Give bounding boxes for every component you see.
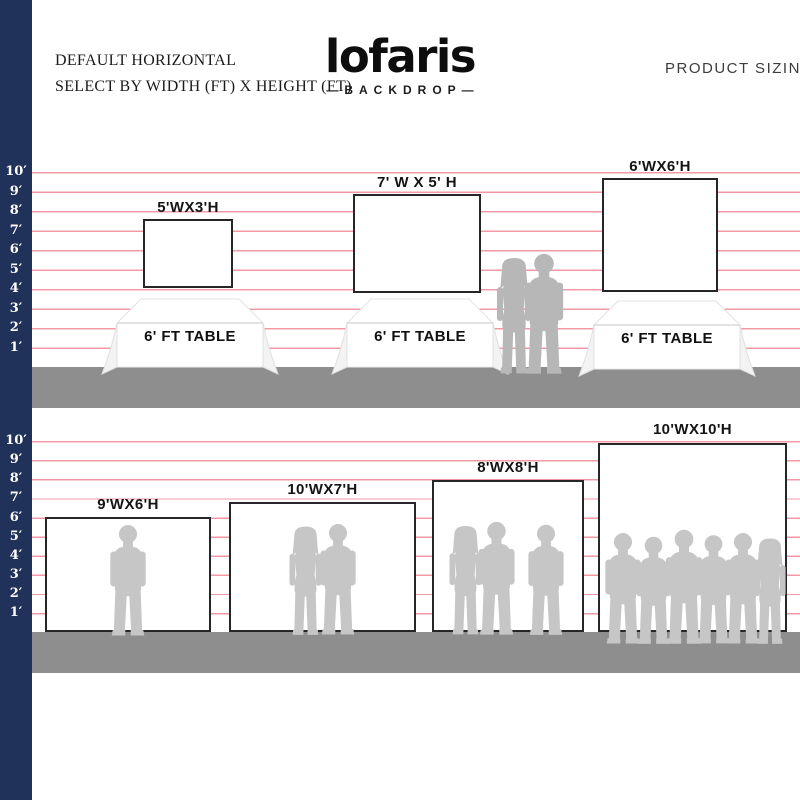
backdrop-label-6x6: 6'WX6'H [592,158,728,175]
backdrop-label-8x8: 8'WX8'H [422,459,594,476]
table-6ft-1: 6' FT TABLE [95,296,285,378]
scale-label: 4′ [2,548,30,563]
scale-label: 3′ [2,301,30,316]
scale-label: 3′ [2,567,30,582]
scale-label: 6′ [2,242,30,257]
scale-label: 7′ [2,490,30,505]
backdrop-5x3 [143,219,233,288]
silhouette-man [104,524,152,638]
backdrop-label-5x3: 5'WX3'H [143,199,233,216]
backdrop-label-10x7: 10'WX7'H [219,481,426,498]
table-6ft-2: 6' FT TABLE [325,296,515,378]
table-label: 6' FT TABLE [325,328,515,345]
product-sizing-chart: DEFAULT HORIZONTAL SELECT BY WIDTH (FT) … [0,0,800,800]
scale-label: 4′ [2,281,30,296]
silhouette-man [522,524,570,637]
scale-label: 10′ [2,433,30,448]
scale-label: 9′ [2,184,30,199]
scale-label: 5′ [2,529,30,544]
table-6ft-3: 6' FT TABLE [572,298,762,380]
backdrop-6x6 [602,178,718,292]
backdrop-7x5 [353,194,481,293]
backdrop-label-10x10: 10'WX10'H [588,421,797,438]
silhouette-man [518,253,570,376]
brand-logo: lofaris —BACKDROP— [300,34,500,97]
page-title: PRODUCT SIZING [665,60,800,77]
brand-logo-subtitle: —BACKDROP— [300,83,500,97]
scale-label: 7′ [2,223,30,238]
silhouette-man [472,521,521,637]
brand-logo-wordmark: lofaris [300,34,500,80]
silhouette-woman [747,538,793,646]
scale-label: 10′ [2,164,30,179]
scale-label: 2′ [2,586,30,601]
scale-label: 1′ [2,340,30,355]
backdrop-label-7x5: 7' W X 5' H [343,174,491,191]
scale-label: 5′ [2,262,30,277]
ruler-bar [0,0,32,800]
scale-label: 8′ [2,471,30,486]
table-label: 6' FT TABLE [572,330,762,347]
scale-label: 6′ [2,510,30,525]
scale-label: 2′ [2,320,30,335]
silhouette-man [314,523,362,637]
scale-label: 9′ [2,452,30,467]
scale-label: 8′ [2,203,30,218]
table-label: 6' FT TABLE [95,328,285,345]
backdrop-label-9x6: 9'WX6'H [45,496,211,513]
scale-label: 1′ [2,605,30,620]
